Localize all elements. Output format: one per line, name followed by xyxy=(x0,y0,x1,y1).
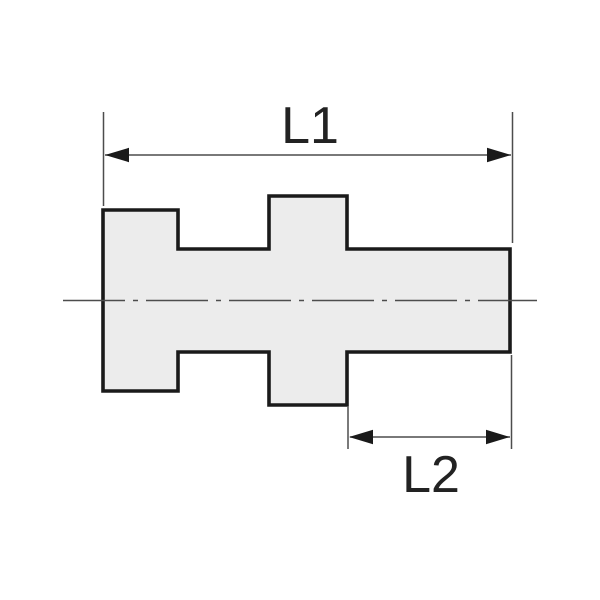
dimension-l2: L2 xyxy=(348,355,512,504)
l1-arrowhead-left-icon xyxy=(105,148,129,162)
l2-arrowhead-right-icon xyxy=(486,430,510,444)
l1-dimension-label: L1 xyxy=(281,97,339,155)
l2-arrowhead-left-icon xyxy=(349,430,373,444)
technical-drawing: L1 L2 xyxy=(0,0,600,600)
drawing-canvas: L1 L2 xyxy=(0,0,600,600)
l2-dimension-label: L2 xyxy=(402,446,460,504)
l1-arrowhead-right-icon xyxy=(487,148,511,162)
